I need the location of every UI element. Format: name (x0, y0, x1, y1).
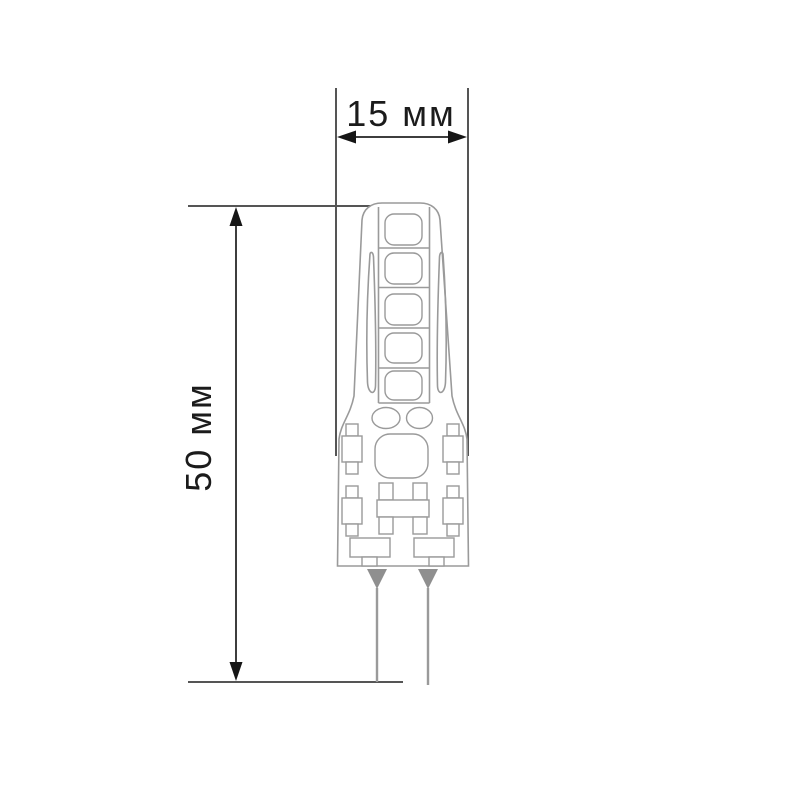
resistor-right-1-cap-top (447, 424, 459, 436)
driver-ic-blob (375, 434, 428, 478)
resistor-right-2-cap-bottom (447, 524, 459, 536)
led-chip-2 (385, 253, 422, 284)
h-chip-lead-bottom-right (413, 517, 427, 534)
led-chip-3 (385, 294, 422, 325)
pad-stub-left (362, 557, 377, 566)
resistor-left-2-body (342, 498, 362, 524)
resistor-right-2-body (443, 498, 463, 524)
resistor-right-2-cap-top (447, 486, 459, 498)
pin-left-base (367, 569, 387, 589)
h-chip-lead-bottom-left (379, 517, 393, 534)
height-dimension-label: 50 мм (178, 382, 219, 492)
led-chip-4 (385, 333, 422, 363)
resistor-right-1-cap-bottom (447, 462, 459, 474)
resistor-left-1-cap-top (346, 424, 358, 436)
led-chip-1 (385, 214, 422, 245)
led-chip-5 (385, 371, 422, 400)
h-chip-body (377, 500, 429, 517)
resistor-left-2-cap-bottom (346, 524, 358, 536)
lamp-dimension-figure: 15 мм 50 мм (0, 0, 800, 800)
dimension-drawing-canvas: 15 мм 50 мм (0, 0, 800, 800)
resistor-left-1-body (342, 436, 362, 462)
height-arrow-top (230, 207, 243, 226)
lamp-drawing (338, 203, 469, 685)
resistor-right-1-body (443, 436, 463, 462)
h-chip-lead-top-right (413, 483, 427, 500)
height-arrow-bottom (230, 662, 243, 681)
resistor-left-2-cap-top (346, 486, 358, 498)
pins (367, 569, 438, 685)
pin-right-base (418, 569, 438, 589)
pad-right (414, 538, 454, 557)
pad-left (350, 538, 390, 557)
resistor-left-1-cap-bottom (346, 462, 358, 474)
width-dimension-label: 15 мм (346, 93, 456, 134)
led-array (385, 214, 422, 400)
h-chip-lead-top-left (379, 483, 393, 500)
capacitor-left (372, 408, 400, 429)
pad-stub-right (429, 557, 444, 566)
capacitor-right (407, 408, 433, 429)
